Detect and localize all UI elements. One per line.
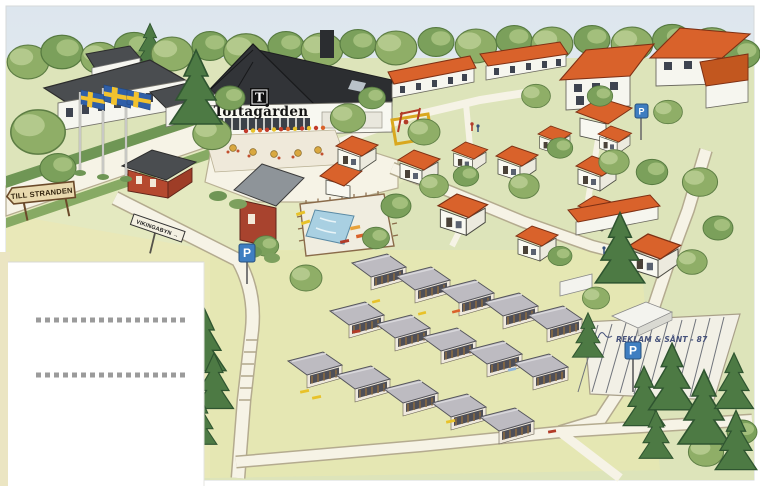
signature-text: REKLAM & SÅNT - 87 [616, 335, 708, 344]
svg-text:P: P [243, 246, 251, 260]
svg-text:P: P [629, 344, 637, 358]
toftagarden-resort-map: T Toftagården [0, 0, 760, 486]
note-box [0, 252, 204, 486]
map-illustration: T Toftagården [0, 0, 760, 486]
svg-text:P: P [638, 107, 644, 117]
logo-letter: T [255, 91, 264, 105]
